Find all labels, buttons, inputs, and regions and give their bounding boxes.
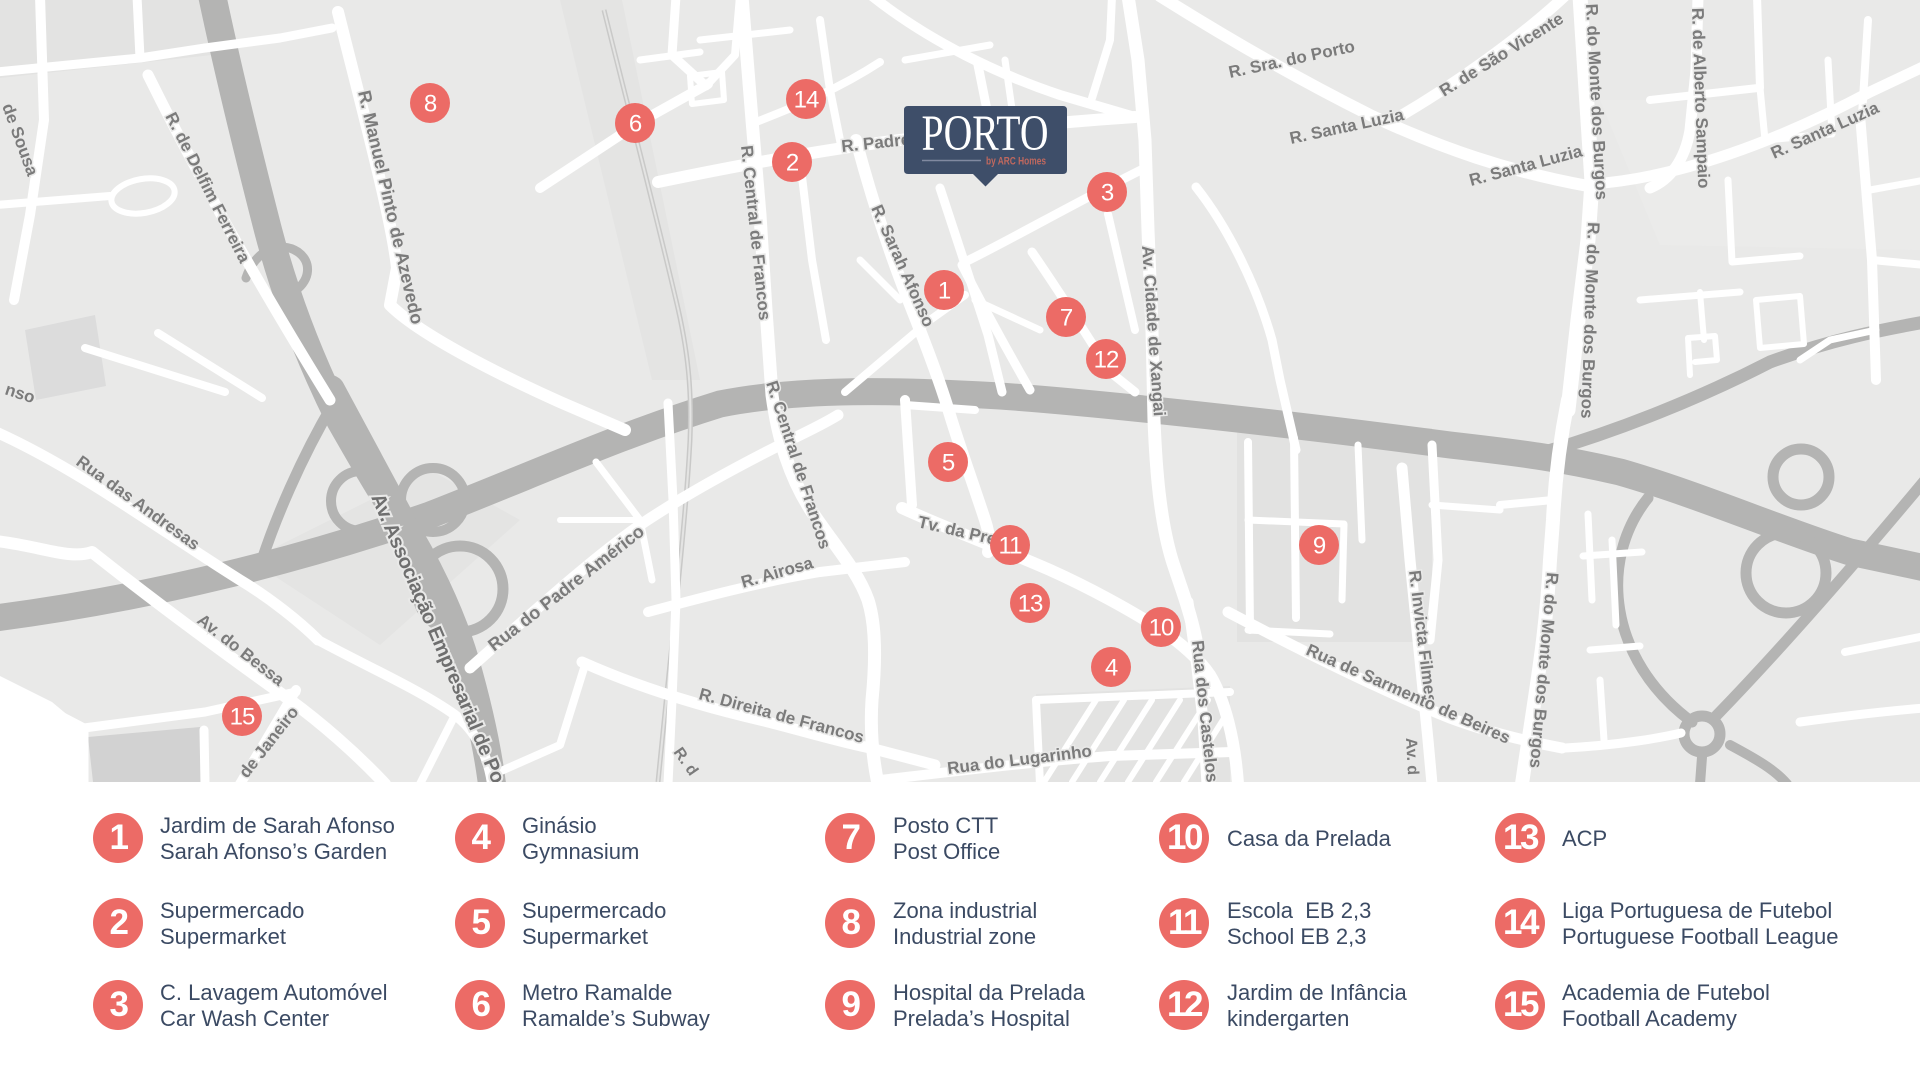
svg-text:7: 7: [1060, 305, 1073, 332]
svg-text:12: 12: [1094, 347, 1119, 374]
svg-text:10: 10: [1149, 615, 1174, 642]
svg-text:9: 9: [1313, 533, 1326, 560]
svg-text:14: 14: [794, 87, 819, 114]
svg-text:5: 5: [942, 450, 955, 477]
svg-text:13: 13: [1018, 591, 1043, 618]
svg-text:4: 4: [1105, 655, 1118, 682]
svg-text:1: 1: [938, 278, 951, 305]
svg-text:15: 15: [230, 704, 255, 731]
svg-text:8: 8: [424, 91, 437, 118]
svg-text:2: 2: [786, 150, 799, 177]
svg-text:by ARC Homes: by ARC Homes: [986, 156, 1046, 168]
svg-text:Av. d: Av. d: [1402, 737, 1421, 775]
svg-text:11: 11: [999, 533, 1023, 560]
svg-text:PORTO: PORTO: [922, 106, 1049, 162]
svg-text:6: 6: [629, 111, 642, 138]
svg-text:3: 3: [1101, 180, 1114, 207]
